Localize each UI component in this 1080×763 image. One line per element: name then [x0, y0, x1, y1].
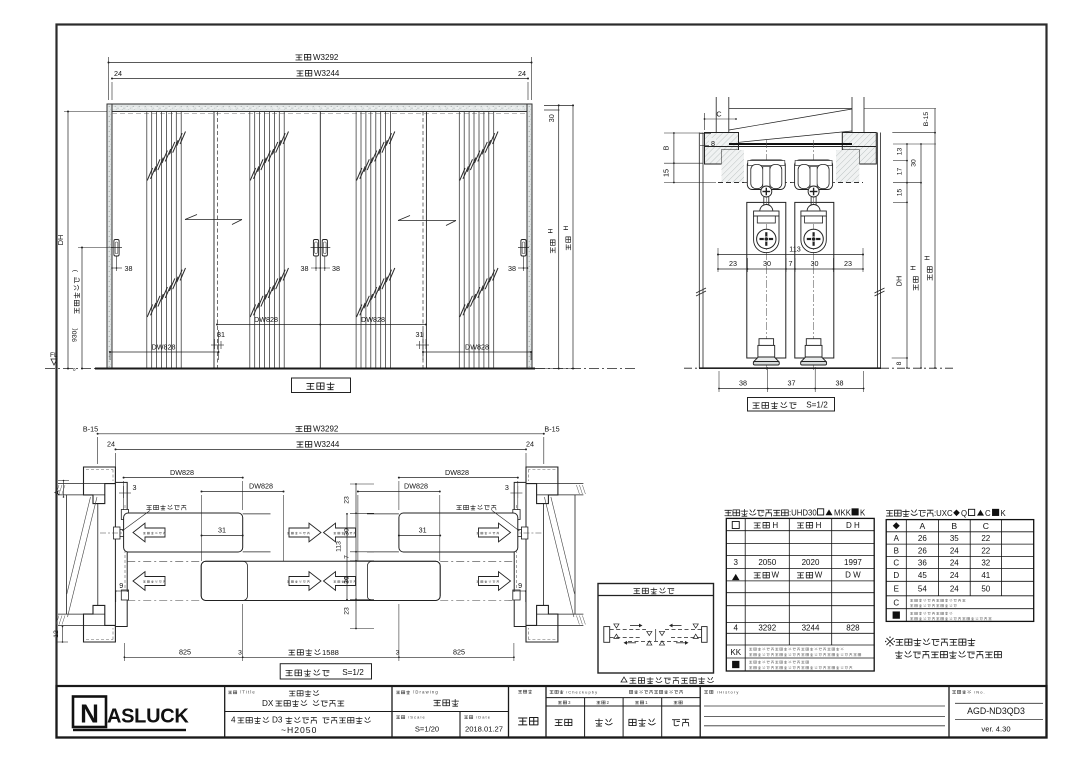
svg-text:B: B — [894, 546, 899, 555]
svg-text:50: 50 — [981, 585, 990, 594]
svg-text:9: 9 — [119, 581, 123, 590]
svg-text:9: 9 — [518, 581, 522, 590]
svg-text:23: 23 — [729, 259, 737, 268]
svg-text:30: 30 — [547, 114, 556, 122]
svg-text:KK: KK — [730, 648, 741, 657]
svg-text:/ D r a w i n g: / D r a w i n g — [413, 690, 438, 695]
svg-text:4: 4 — [231, 716, 236, 725]
svg-text:23: 23 — [344, 496, 351, 504]
svg-text:/ H i s t o r y: / H i s t o r y — [717, 689, 738, 694]
svg-text:ver. 4.30: ver. 4.30 — [981, 725, 1010, 734]
svg-text:D3: D3 — [272, 716, 283, 725]
svg-text:): ) — [72, 270, 79, 272]
svg-text:C: C — [716, 110, 721, 119]
svg-text:7: 7 — [789, 259, 793, 268]
svg-text:H: H — [563, 225, 570, 230]
svg-text:24: 24 — [950, 571, 959, 580]
svg-text:12: 12 — [53, 630, 60, 638]
svg-text:C: C — [985, 509, 991, 518]
svg-text:3: 3 — [133, 483, 137, 492]
svg-text:30: 30 — [763, 259, 771, 268]
svg-text:DW828: DW828 — [445, 468, 469, 477]
svg-text:DW828: DW828 — [152, 343, 176, 352]
svg-text:24: 24 — [950, 546, 959, 555]
svg-text:DW828: DW828 — [249, 482, 273, 491]
svg-text:DX: DX — [262, 699, 274, 708]
svg-text:H: H — [925, 255, 932, 260]
svg-text:1588: 1588 — [322, 648, 339, 657]
svg-text:31: 31 — [416, 330, 424, 339]
svg-text:C: C — [893, 559, 899, 568]
svg-text:17: 17 — [897, 168, 904, 176]
svg-text:DW828: DW828 — [361, 315, 385, 324]
svg-text:3: 3 — [505, 483, 509, 492]
svg-text:24: 24 — [518, 69, 526, 78]
svg-text:31: 31 — [218, 526, 226, 535]
svg-text:B: B — [662, 145, 671, 150]
svg-text:26: 26 — [918, 546, 927, 555]
svg-text:K: K — [860, 509, 866, 518]
svg-text:DW828: DW828 — [254, 315, 278, 324]
svg-text:31: 31 — [217, 330, 225, 339]
svg-text:DH: DH — [895, 276, 904, 286]
svg-text:24: 24 — [526, 440, 534, 449]
svg-text:A: A — [919, 521, 925, 531]
svg-text:23: 23 — [844, 259, 852, 268]
svg-text:B-15: B-15 — [83, 424, 98, 433]
svg-text:DW828: DW828 — [170, 468, 194, 477]
svg-text:15: 15 — [662, 169, 671, 177]
svg-text:FL: FL — [50, 352, 58, 359]
svg-text:24: 24 — [950, 559, 959, 568]
svg-text:C: C — [983, 521, 989, 531]
svg-text:DW828: DW828 — [465, 343, 489, 352]
svg-text::UHD30: :UHD30 — [789, 509, 817, 518]
svg-text:ASLUCK: ASLUCK — [107, 706, 189, 728]
svg-text:38: 38 — [301, 264, 309, 273]
svg-text::UXC: :UXC — [934, 509, 953, 518]
svg-text:1997: 1997 — [844, 558, 862, 567]
svg-text:S=1/2: S=1/2 — [342, 668, 364, 677]
svg-text:113: 113 — [789, 245, 800, 254]
svg-text:/ C h e c k u p b y: / C h e c k u p b y — [566, 689, 597, 694]
svg-text:H: H — [772, 521, 778, 530]
svg-text:B: B — [951, 521, 957, 531]
svg-text:13: 13 — [897, 148, 904, 156]
svg-text:2050: 2050 — [758, 558, 776, 567]
svg-text:W: W — [771, 571, 779, 580]
svg-text:H: H — [816, 521, 822, 530]
svg-text:113: 113 — [336, 541, 343, 552]
svg-text:37: 37 — [788, 379, 796, 388]
svg-text:N: N — [80, 699, 99, 729]
svg-text:2020: 2020 — [802, 558, 820, 567]
svg-text:24: 24 — [107, 440, 115, 449]
svg-text:W3292: W3292 — [313, 53, 339, 62]
svg-text:B-15: B-15 — [544, 424, 559, 433]
svg-text:/ N o .: / N o . — [974, 689, 985, 694]
svg-text:DH: DH — [56, 235, 65, 246]
svg-text:54: 54 — [918, 585, 927, 594]
svg-text:3: 3 — [734, 558, 739, 567]
svg-text:38: 38 — [332, 264, 340, 273]
svg-text:D H: D H — [846, 521, 860, 530]
svg-text:22: 22 — [981, 534, 990, 543]
svg-text:23: 23 — [344, 607, 351, 615]
svg-text:45: 45 — [918, 571, 927, 580]
svg-text:8: 8 — [896, 361, 903, 365]
svg-text:24: 24 — [950, 585, 959, 594]
svg-text:D W: D W — [845, 571, 861, 580]
svg-text:24: 24 — [114, 69, 122, 78]
svg-text:3: 3 — [238, 650, 242, 657]
svg-text:S=1/2: S=1/2 — [806, 401, 828, 410]
svg-text:22: 22 — [981, 546, 990, 555]
svg-text:36: 36 — [918, 559, 927, 568]
svg-text:828: 828 — [846, 623, 860, 632]
svg-text:W3244: W3244 — [314, 69, 340, 78]
svg-text:31: 31 — [419, 526, 427, 535]
svg-text:W3292: W3292 — [313, 424, 339, 433]
svg-text:825: 825 — [453, 648, 465, 657]
svg-text:/ T i t l e: / T i t l e — [240, 690, 255, 695]
svg-text:W: W — [815, 571, 823, 580]
svg-text:E: E — [894, 585, 899, 594]
svg-text:MKK: MKK — [834, 509, 852, 518]
svg-text:30: 30 — [911, 159, 918, 167]
svg-text:C: C — [893, 598, 899, 607]
svg-text:Q: Q — [961, 509, 967, 518]
svg-text:38: 38 — [508, 264, 516, 273]
svg-text:2018.01.27: 2018.01.27 — [465, 725, 503, 734]
svg-text:/ S c a l e: / S c a l e — [408, 715, 425, 720]
svg-text:38: 38 — [125, 264, 133, 273]
svg-text:K: K — [1001, 509, 1007, 518]
svg-text:26: 26 — [918, 534, 927, 543]
svg-text:H: H — [548, 228, 555, 233]
svg-text:3292: 3292 — [758, 623, 776, 632]
svg-text:38: 38 — [739, 379, 747, 388]
svg-text:41: 41 — [981, 571, 990, 580]
svg-text:W3244: W3244 — [314, 440, 340, 449]
svg-text:A: A — [55, 490, 62, 495]
svg-text:~H2050: ~H2050 — [281, 725, 317, 735]
svg-text:35: 35 — [950, 534, 959, 543]
svg-text:S=1/20: S=1/20 — [415, 725, 439, 734]
svg-text:/ D a t e: / D a t e — [476, 715, 491, 720]
svg-text:30: 30 — [811, 259, 819, 268]
svg-text:4: 4 — [734, 623, 739, 632]
svg-text:H: H — [911, 265, 918, 270]
svg-text:AGD-ND3QD3: AGD-ND3QD3 — [967, 706, 1025, 716]
svg-text:3244: 3244 — [802, 623, 820, 632]
svg-text:D: D — [893, 571, 899, 580]
svg-text:DW828: DW828 — [404, 482, 428, 491]
svg-text:A: A — [894, 534, 900, 543]
svg-text:930(: 930( — [72, 328, 79, 342]
svg-text:825: 825 — [179, 648, 191, 657]
svg-text:B-15: B-15 — [923, 112, 930, 127]
svg-text:38: 38 — [836, 379, 844, 388]
svg-text:15: 15 — [897, 189, 904, 197]
svg-text:32: 32 — [981, 559, 990, 568]
